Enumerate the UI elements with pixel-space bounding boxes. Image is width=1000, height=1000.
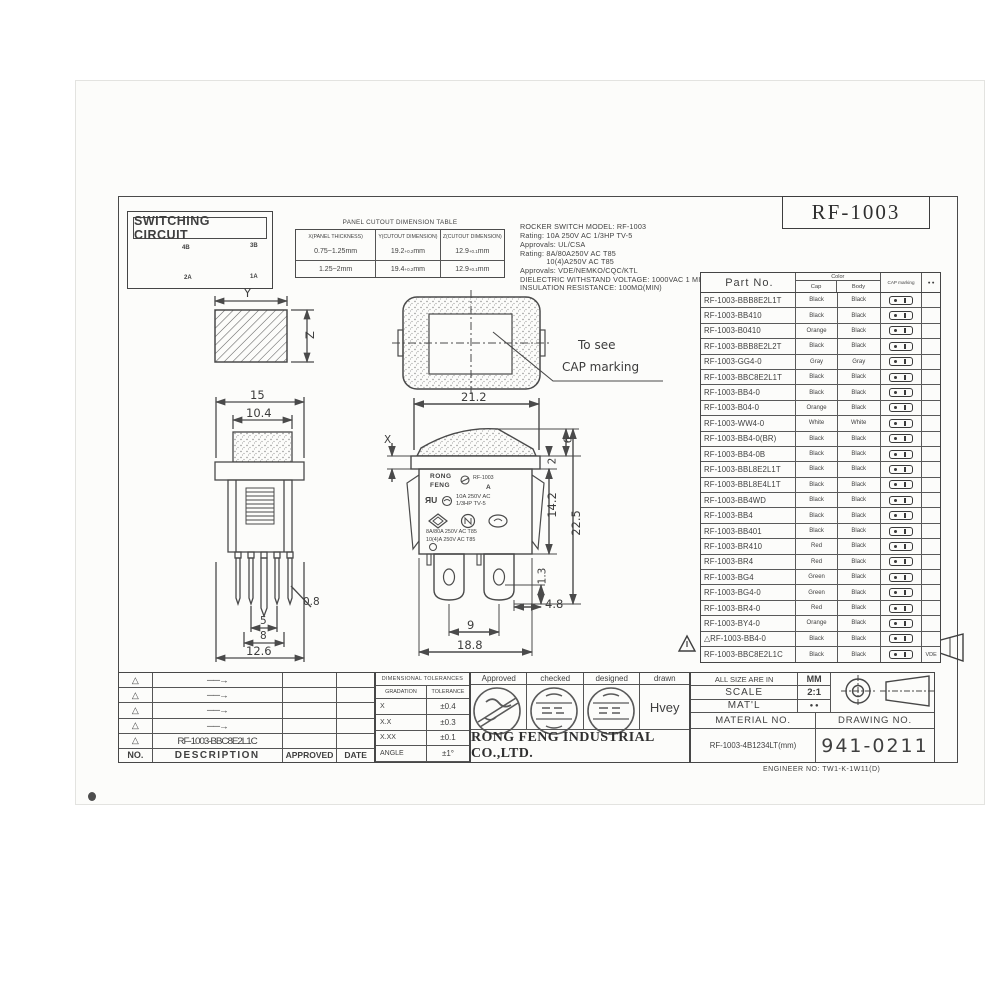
dim-label-9: 9 bbox=[467, 618, 474, 632]
part-number: RF-1003-BG4 bbox=[704, 573, 754, 582]
cutout-x-value: 1.25~2mm bbox=[319, 266, 352, 273]
cap-marking-icon bbox=[889, 527, 913, 536]
cap-marking-icon bbox=[889, 311, 913, 320]
cutout-z-value: 12.9 bbox=[455, 266, 469, 273]
revision-col-desc: DESCRIPTION bbox=[153, 749, 283, 762]
body-color: Black bbox=[851, 374, 866, 380]
terminal-label-2a: 2A bbox=[184, 275, 192, 281]
cap-color: Black bbox=[809, 390, 824, 396]
scale-value: 2:1 bbox=[798, 686, 830, 698]
tolerance-value: ±0.4 bbox=[440, 702, 456, 711]
spec-line: INSULATION RESISTANCE: 100MΩ(MIN) bbox=[520, 284, 721, 293]
face-pole-a: A bbox=[486, 484, 491, 491]
checked-stamp-area bbox=[527, 685, 583, 729]
dim-label-Z: Z bbox=[303, 331, 317, 339]
parts-table-row: RF-1003-BB4 Black Black bbox=[701, 508, 940, 523]
parts-table-row: RF-1003-BG4-0 Green Black bbox=[701, 585, 940, 600]
size-label: ALL SIZE ARE IN bbox=[691, 673, 798, 685]
cap-marking-icon bbox=[889, 511, 913, 520]
cutout-row: 0.75~1.25mm 19.2+0.2 mm 12.9+0.1mm bbox=[296, 243, 504, 260]
parts-table-row: RF-1003-BBC8E2L1T Black Black bbox=[701, 370, 940, 385]
matl-label: MAT'L bbox=[691, 700, 798, 712]
cap-color: Red bbox=[811, 543, 822, 549]
cap-color: Black bbox=[809, 343, 824, 349]
face-rating-2: 1/3HP TV-5 bbox=[456, 501, 486, 507]
switching-circuit-title: SWITCHING CIRCUIT bbox=[133, 217, 267, 239]
body-color: Black bbox=[851, 343, 866, 349]
part-number: RF-1003-B04-0 bbox=[704, 403, 759, 412]
parts-table-body: RF-1003-BBB8E2L1T Black Black RF-1003-BB… bbox=[701, 293, 940, 662]
parts-col-extra: ● ● bbox=[922, 273, 940, 292]
parts-table-row: RF-1003-B0410 Orange Black bbox=[701, 324, 940, 339]
company-name: RONG FENG INDUSTRIAL CO.,LTD. bbox=[471, 730, 689, 762]
body-color: Black bbox=[851, 590, 866, 596]
cap-color: Orange bbox=[807, 620, 827, 626]
designed-stamp-area bbox=[584, 685, 640, 729]
dim-label-21-2: 21.2 bbox=[461, 390, 487, 404]
size-value: MM bbox=[798, 673, 830, 685]
switching-circuit-title-label: SWITCHING CIRCUIT bbox=[134, 214, 266, 242]
dim-label-6: 6 bbox=[562, 437, 574, 444]
part-number: RF-1003-BBC8E2L1C bbox=[704, 650, 783, 659]
parts-table-row: RF-1003-BR4-0 Red Black bbox=[701, 601, 940, 616]
part-number: RF-1003-BBC8E2L1T bbox=[704, 373, 782, 382]
cutout-row: 1.25~2mm 19.4+0.2 mm 12.9+0.1mm bbox=[296, 260, 504, 277]
revision-row: △ ──→ bbox=[119, 703, 374, 718]
revision-row: △ ──→ bbox=[119, 688, 374, 703]
dim-label-Y: Y bbox=[244, 286, 251, 300]
part-number: RF-1003-B0410 bbox=[704, 326, 761, 335]
body-color: Black bbox=[851, 390, 866, 396]
parts-table-row: RF-1003-WW4-0 White White bbox=[701, 416, 940, 431]
part-number: RF-1003-BB4 bbox=[704, 511, 753, 520]
cap-color: Black bbox=[809, 297, 824, 303]
body-color: Black bbox=[851, 482, 866, 488]
parts-col-cap: Cap bbox=[796, 281, 838, 292]
scanned-datasheet-page: { "colors": {"ink": "#3c3c3c", "line": "… bbox=[0, 0, 1000, 1000]
body-color: White bbox=[851, 420, 866, 426]
cap-color: Orange bbox=[807, 405, 827, 411]
revision-row: △ ──→ bbox=[119, 719, 374, 734]
cutout-col-x: X(PANEL THICKNESS) bbox=[296, 230, 375, 243]
part-number: RF-1003-BR4 bbox=[704, 557, 753, 566]
parts-col-marking: CAP marking bbox=[881, 273, 922, 292]
cutout-y-value: 19.2 bbox=[391, 248, 405, 255]
body-color: Black bbox=[851, 405, 866, 411]
part-number: RF-1003-BR410 bbox=[704, 542, 762, 551]
gradation-value: X bbox=[380, 703, 385, 710]
drawn-header: drawn bbox=[640, 673, 689, 684]
cap-color: Black bbox=[809, 652, 824, 658]
front-view-linework bbox=[387, 398, 581, 656]
cap-color: Red bbox=[811, 559, 822, 565]
body-color: Black bbox=[851, 466, 866, 472]
part-number: RF-1003-BB401 bbox=[704, 527, 762, 536]
revision-col-approved: APPROVED bbox=[283, 749, 338, 762]
drawing-no-value: 941-0211 bbox=[816, 729, 934, 762]
tolerance-col-gradation: GRADATION bbox=[376, 686, 427, 698]
parts-table-row: RF-1003-BBL8E4L1T Black Black bbox=[701, 478, 940, 493]
revision-triangle: △ bbox=[132, 675, 139, 686]
cap-color: Green bbox=[808, 574, 825, 580]
spec-block: ROCKER SWITCH MODEL: RF-1003Rating: 10A … bbox=[520, 206, 721, 293]
dim-label-0-8: 0.8 bbox=[303, 596, 320, 608]
revision-row: △ RF-1003-BBC8E2L1C bbox=[119, 734, 374, 749]
part-number: RF-1003-BBL8E4L1T bbox=[704, 480, 781, 489]
dim-label-5: 5 bbox=[260, 615, 267, 627]
material-no-value: RF-1003-4B1234LT(mm) bbox=[691, 729, 816, 762]
cap-marking-icon bbox=[889, 588, 913, 597]
cutout-col-y: Y(CUTOUT DIMENSION) bbox=[375, 230, 439, 243]
cutout-col-z: Z(CUTOUT DIMENSION) bbox=[440, 230, 504, 243]
gradation-value: X.X bbox=[380, 719, 391, 726]
dim-label-12-6: 12.6 bbox=[246, 644, 272, 658]
part-number: RF-1003-BBB8E2L1T bbox=[704, 296, 782, 305]
tolerance-title: DIMENSIONAL TOLERANCES bbox=[376, 673, 469, 686]
body-color: Black bbox=[851, 328, 866, 334]
revision-desc: ──→ bbox=[207, 675, 228, 685]
cap-color: Black bbox=[809, 451, 824, 457]
part-number: RF-1003-BR4-0 bbox=[704, 604, 760, 613]
cap-marking-icon bbox=[889, 496, 913, 505]
parts-table-row: RF-1003-BBB8E2L1T Black Black bbox=[701, 293, 940, 308]
checked-header: checked bbox=[527, 673, 583, 684]
cutout-table-title: PANEL CUTOUT DIMENSION TABLE bbox=[295, 217, 505, 227]
parts-table-row: RF-1003-B04-0 Orange Black bbox=[701, 401, 940, 416]
revision-desc: ──→ bbox=[207, 705, 228, 715]
model-title-box: RF-1003 bbox=[782, 196, 930, 229]
matl-value: ● ● bbox=[798, 700, 830, 712]
cap-marking-icon bbox=[889, 419, 913, 428]
cap-marking-icon bbox=[889, 342, 913, 351]
revision-col-date: DATE bbox=[337, 749, 374, 762]
cap-color: Black bbox=[809, 313, 824, 319]
dim-label-18-8: 18.8 bbox=[457, 638, 483, 652]
face-rating-4: 10(4)A 250V AC T85 bbox=[426, 537, 475, 543]
parts-table-row: RF-1003-BB4WD Black Black bbox=[701, 493, 940, 508]
material-no-label: MATERIAL NO. bbox=[691, 713, 816, 728]
cap-marking-icon bbox=[889, 542, 913, 551]
dim-label-4-8: 4.8 bbox=[545, 597, 563, 611]
part-note: VDE bbox=[925, 652, 936, 658]
dim-label-2: 2 bbox=[546, 458, 558, 465]
engineer-no: ENGINEER NO: TW1-K-1W11(D) bbox=[763, 766, 880, 773]
cap-color: Black bbox=[809, 528, 824, 534]
cap-marking-icon bbox=[889, 388, 913, 397]
tolerance-col-tolerance: TOLERANCE bbox=[427, 686, 469, 698]
body-color: Black bbox=[851, 636, 866, 642]
cap-color: Red bbox=[811, 605, 822, 611]
tolerance-row: X.X ±0.3 bbox=[376, 715, 469, 731]
scale-label: SCALE bbox=[691, 686, 798, 698]
cutout-table: X(PANEL THICKNESS) Y(CUTOUT DIMENSION) Z… bbox=[295, 229, 505, 278]
body-color: Black bbox=[851, 605, 866, 611]
cap-marking-icon bbox=[889, 604, 913, 613]
part-number: RF-1003-BG4-0 bbox=[704, 588, 761, 597]
cutout-x-value: 0.75~1.25mm bbox=[314, 248, 357, 255]
parts-table-row: RF-1003-BBL8E2L1T Black Black bbox=[701, 462, 940, 477]
part-number: RF-1003-BB4WD bbox=[704, 496, 766, 505]
parts-col-part: Part No. bbox=[701, 273, 796, 292]
drawn-name: Hvey bbox=[640, 685, 689, 729]
parts-table-row: RF-1003-BB410 Black Black bbox=[701, 308, 940, 323]
gradation-value: X.XX bbox=[380, 734, 396, 741]
tolerance-row: X.XX ±0.1 bbox=[376, 731, 469, 747]
approved-header: Approved bbox=[471, 673, 527, 684]
part-number: RF-1003-BB410 bbox=[704, 311, 762, 320]
revision-row: △ ──→ bbox=[119, 673, 374, 688]
cap-note-line1: To see bbox=[578, 338, 615, 352]
tolerance-rows: X ±0.4 X.X ±0.3 X.XX ±0.1 ANGLE ±1° bbox=[376, 699, 469, 762]
face-rating-3: 8A/80A 250V AC T85 bbox=[426, 529, 477, 535]
body-color: Black bbox=[851, 313, 866, 319]
cap-color: Black bbox=[809, 466, 824, 472]
ul-mark-icon: ЯU bbox=[425, 495, 437, 505]
revision-triangle: △ bbox=[132, 705, 139, 716]
revision-triangle: △ bbox=[132, 690, 139, 701]
cap-color: White bbox=[809, 420, 824, 426]
cap-marking-icon bbox=[889, 296, 913, 305]
body-color: Black bbox=[851, 513, 866, 519]
revision-rows: △ ──→ △ ──→ △ ──→ △ ──→ △ RF-1003-BBC8E2… bbox=[119, 673, 374, 749]
parts-table-row: RF-1003-BB4-0 Black Black bbox=[701, 385, 940, 400]
part-number: RF-1003-BY4-0 bbox=[704, 619, 760, 628]
revision-triangle-icon bbox=[679, 636, 695, 651]
part-number: RF-1003-BBL8E2L1T bbox=[704, 465, 781, 474]
tolerance-row: ANGLE ±1° bbox=[376, 746, 469, 762]
cap-color: Black bbox=[809, 482, 824, 488]
dim-label-22-5: 22.5 bbox=[569, 510, 583, 536]
cap-marking-icon bbox=[889, 434, 913, 443]
face-brand-feng: FENG bbox=[430, 482, 450, 489]
cap-marking-icon bbox=[889, 557, 913, 566]
parts-table-row: RF-1003-BBB8E2L2T Black Black bbox=[701, 339, 940, 354]
tolerance-value: ±0.1 bbox=[440, 733, 456, 742]
cutout-y-value: 19.4 bbox=[391, 266, 405, 273]
parts-col-color: Color bbox=[796, 273, 880, 281]
face-rating-1: 10A 250V AC bbox=[456, 494, 491, 500]
revision-desc: RF-1003-BBC8E2L1C bbox=[178, 736, 257, 746]
body-color: Black bbox=[851, 528, 866, 534]
revision-triangle: △ bbox=[132, 720, 139, 731]
body-color: Gray bbox=[852, 359, 865, 365]
terminal-label-4b: 4B bbox=[182, 245, 190, 251]
part-number: RF-1003-WW4-0 bbox=[704, 419, 764, 428]
cap-marking-icon bbox=[889, 634, 913, 643]
body-color: Black bbox=[851, 543, 866, 549]
revision-header: NO. DESCRIPTION APPROVED DATE bbox=[119, 749, 374, 762]
tolerance-row: X ±0.4 bbox=[376, 699, 469, 715]
approval-block: Approved checked designed drawn Hvey RON… bbox=[470, 672, 690, 763]
parts-table-header: Part No. Color Cap Body CAP marking ● ● bbox=[701, 273, 940, 293]
designed-header: designed bbox=[584, 673, 640, 684]
part-number: RF-1003-BB4-0B bbox=[704, 450, 765, 459]
revision-triangle: △ bbox=[132, 735, 139, 746]
terminal-label-1a: 1A bbox=[250, 274, 258, 280]
cap-marking-icon bbox=[889, 465, 913, 474]
part-number: RF-1003-BB4-0(BR) bbox=[704, 434, 776, 443]
top-view-linework bbox=[392, 290, 663, 396]
parts-table-row: RF-1003-BG4 Green Black bbox=[701, 570, 940, 585]
cap-color: Black bbox=[809, 436, 824, 442]
body-color: Black bbox=[851, 559, 866, 565]
parts-col-body: Body bbox=[837, 281, 879, 292]
body-color: Black bbox=[851, 652, 866, 658]
tolerance-value: ±1° bbox=[442, 749, 454, 758]
cap-color: Black bbox=[809, 497, 824, 503]
cap-marking-icon bbox=[889, 373, 913, 382]
body-color: Black bbox=[851, 451, 866, 457]
part-number: △RF-1003-BB4-0 bbox=[704, 634, 766, 643]
revision-col-no: NO. bbox=[119, 749, 153, 762]
body-color: Black bbox=[851, 497, 866, 503]
dim-label-10-4: 10.4 bbox=[246, 406, 272, 420]
cap-color: Black bbox=[809, 374, 824, 380]
part-number: RF-1003-GG4-0 bbox=[704, 357, 762, 366]
parts-table-row: RF-1003-BB4-0B Black Black bbox=[701, 447, 940, 462]
parts-table: Part No. Color Cap Body CAP marking ● ● … bbox=[700, 272, 941, 663]
left-view-linework bbox=[215, 296, 314, 662]
parts-table-row: RF-1003-BB4-0(BR) Black Black bbox=[701, 432, 940, 447]
cap-color: Green bbox=[808, 590, 825, 596]
body-color: Black bbox=[851, 436, 866, 442]
cap-note-line2: CAP marking bbox=[562, 360, 639, 374]
revision-table: △ ──→ △ ──→ △ ──→ △ ──→ △ RF-1003-BBC8E2… bbox=[118, 672, 375, 763]
cap-color: Black bbox=[809, 513, 824, 519]
dim-label-X: X bbox=[384, 434, 391, 446]
parts-table-row: RF-1003-BB401 Black Black bbox=[701, 524, 940, 539]
body-color: Black bbox=[851, 297, 866, 303]
revision-desc: ──→ bbox=[207, 690, 228, 700]
parts-table-row: RF-1003-BR4 Red Black bbox=[701, 555, 940, 570]
cutout-rows: 0.75~1.25mm 19.2+0.2 mm 12.9+0.1mm 1.25~… bbox=[296, 243, 504, 277]
tolerance-table: DIMENSIONAL TOLERANCES GRADATION TOLERAN… bbox=[375, 672, 470, 763]
face-model: RF-1003 bbox=[473, 475, 494, 481]
part-number: RF-1003-BBB8E2L2T bbox=[704, 342, 782, 351]
info-block: ALL SIZE ARE IN MM SCALE 2:1 MAT'L ● ● M… bbox=[690, 672, 935, 763]
dim-label-1-3: 1.3 bbox=[536, 568, 548, 585]
gradation-value: ANGLE bbox=[380, 750, 404, 757]
tolerance-value: ±0.3 bbox=[440, 718, 456, 727]
parts-table-row: RF-1003-BR410 Red Black bbox=[701, 539, 940, 554]
revision-desc: ──→ bbox=[207, 721, 228, 731]
cap-marking-icon bbox=[889, 650, 913, 659]
cap-marking-icon bbox=[889, 573, 913, 582]
face-brand-rong: RONG bbox=[430, 473, 452, 480]
parts-table-row: RF-1003-GG4-0 Gray Gray bbox=[701, 355, 940, 370]
parts-table-row: △RF-1003-BB4-0 Black Black bbox=[701, 632, 940, 647]
cap-color: Gray bbox=[810, 359, 823, 365]
cap-marking-icon bbox=[889, 619, 913, 628]
terminal-label-3b: 3B bbox=[250, 243, 258, 249]
body-color: Black bbox=[851, 574, 866, 580]
dim-label-15: 15 bbox=[250, 388, 265, 402]
drawing-no-label: DRAWING NO. bbox=[816, 713, 934, 728]
cap-marking-icon bbox=[889, 326, 913, 335]
projection-symbol-area bbox=[831, 673, 934, 712]
model-title: RF-1003 bbox=[812, 200, 901, 225]
body-color: Black bbox=[851, 620, 866, 626]
cutout-z-value: 12.9 bbox=[455, 248, 469, 255]
approved-stamp-area bbox=[471, 685, 527, 729]
cap-marking-icon bbox=[889, 357, 913, 366]
parts-table-row: RF-1003-BBC8E2L1C Black Black VDE bbox=[701, 647, 940, 662]
cap-color: Orange bbox=[807, 328, 827, 334]
cap-marking-icon bbox=[889, 480, 913, 489]
cap-color: Black bbox=[809, 636, 824, 642]
dim-label-8: 8 bbox=[260, 630, 267, 642]
part-number: RF-1003-BB4-0 bbox=[704, 388, 760, 397]
cap-marking-icon bbox=[889, 403, 913, 412]
dim-label-14-2: 14.2 bbox=[545, 492, 559, 518]
parts-table-row: RF-1003-BY4-0 Orange Black bbox=[701, 616, 940, 631]
cap-marking-icon bbox=[889, 450, 913, 459]
